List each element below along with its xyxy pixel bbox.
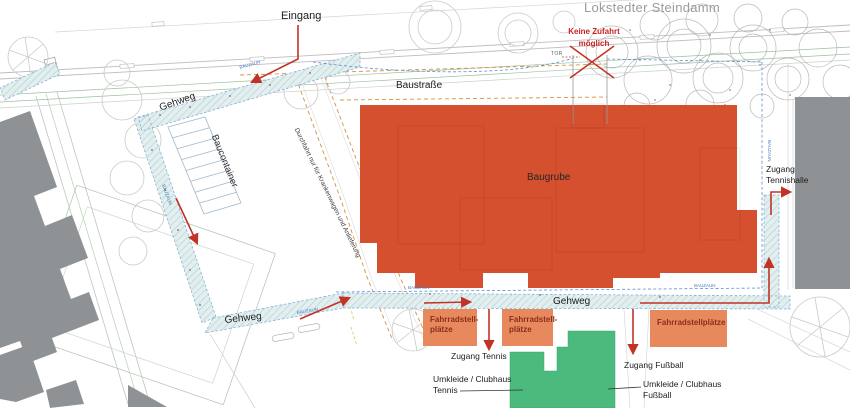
access-tennis-label: Zugang Tennis bbox=[451, 351, 507, 361]
bauzaun-label: BAUZAUN bbox=[767, 140, 772, 162]
no-access-cross-icon bbox=[570, 46, 614, 78]
bike-parking-box-1: Fahrradstell- plätze bbox=[423, 309, 477, 346]
clubhouse-football-label: Umkleide / Clubhaus Fußball bbox=[643, 379, 721, 401]
site-plan: BAUZAUN BAUZAUN BAUZAUN BAUZAUN BAUZAUN … bbox=[0, 0, 850, 408]
excavation-pit bbox=[360, 104, 757, 288]
excavation-label: Baugrube bbox=[527, 172, 570, 183]
clubhouse-tennis-label: Umkleide / Clubhaus Tennis bbox=[433, 374, 511, 396]
no-access-line2: möglich bbox=[556, 38, 632, 50]
street-lines bbox=[0, 0, 850, 108]
building-tennishalle bbox=[795, 97, 850, 289]
bauzaun-label: BAUZAUN bbox=[408, 285, 430, 290]
arrow-gehweg-right bbox=[424, 302, 470, 303]
bike-parking-box-2: Fahrradstell- plätze bbox=[502, 309, 553, 346]
tree-bottom-right bbox=[790, 297, 850, 357]
walkway-label-bottom: Gehweg bbox=[553, 296, 590, 307]
no-access-line1: Keine Zufahrt bbox=[556, 26, 632, 38]
construction-road-label: Baustraße bbox=[396, 80, 442, 91]
no-access-label: Keine Zufahrt möglich bbox=[556, 26, 632, 49]
entrance-label: Eingang bbox=[281, 10, 321, 22]
bauzaun-label: BAUZAUN bbox=[694, 283, 716, 288]
access-tennis-hall-label: Zugang Tennishalle bbox=[766, 164, 809, 186]
access-football-label: Zugang Fußball bbox=[624, 360, 684, 370]
gate-label: TOR bbox=[551, 51, 563, 57]
building-left bbox=[0, 111, 99, 363]
bike-parking-box-3: Fahrradstellplätze bbox=[650, 310, 727, 347]
street-name-label: Lokstedter Steindamm bbox=[584, 0, 720, 15]
